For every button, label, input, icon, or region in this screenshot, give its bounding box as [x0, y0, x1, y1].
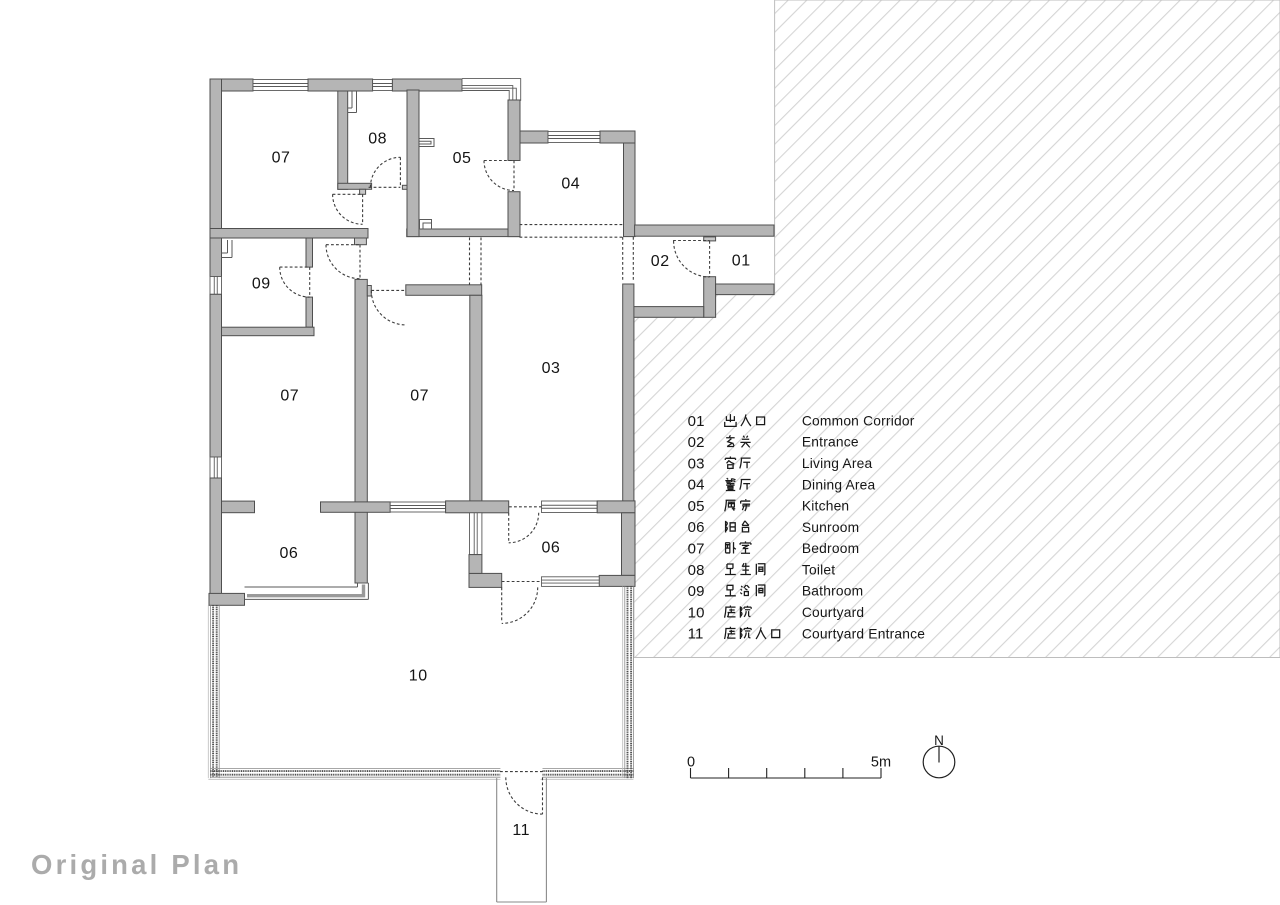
- svg-text:08: 08: [368, 130, 387, 147]
- svg-text:Common Corridor: Common Corridor: [802, 413, 915, 428]
- svg-text:Courtyard Entrance: Courtyard Entrance: [802, 626, 925, 641]
- svg-text:09: 09: [252, 275, 271, 292]
- svg-text:Toilet: Toilet: [802, 562, 835, 577]
- svg-text:Dining Area: Dining Area: [802, 477, 876, 492]
- svg-text:07: 07: [280, 387, 299, 404]
- svg-text:08: 08: [688, 562, 705, 579]
- svg-text:N: N: [934, 733, 944, 748]
- svg-text:Entrance: Entrance: [802, 435, 859, 450]
- svg-text:Courtyard: Courtyard: [802, 605, 864, 620]
- svg-text:Bathroom: Bathroom: [802, 584, 863, 599]
- svg-text:Sunroom: Sunroom: [802, 520, 859, 535]
- svg-text:09: 09: [688, 583, 705, 600]
- svg-text:07: 07: [688, 541, 705, 558]
- svg-text:04: 04: [561, 175, 580, 192]
- svg-text:0: 0: [687, 755, 695, 771]
- svg-text:05: 05: [453, 150, 472, 167]
- svg-text:05: 05: [688, 498, 705, 515]
- svg-text:02: 02: [651, 253, 670, 270]
- svg-text:11: 11: [688, 626, 704, 643]
- svg-text:Original Plan: Original Plan: [31, 849, 242, 880]
- svg-text:04: 04: [688, 477, 705, 494]
- svg-text:06: 06: [280, 545, 299, 562]
- svg-text:06: 06: [542, 539, 561, 556]
- svg-text:03: 03: [542, 360, 561, 377]
- svg-text:01: 01: [732, 253, 751, 270]
- svg-text:07: 07: [272, 150, 291, 167]
- svg-text:10: 10: [688, 604, 705, 621]
- svg-text:5m: 5m: [871, 755, 891, 771]
- svg-text:11: 11: [512, 822, 530, 839]
- svg-text:Kitchen: Kitchen: [802, 499, 849, 514]
- svg-text:10: 10: [409, 668, 428, 685]
- svg-text:06: 06: [688, 519, 705, 536]
- svg-text:02: 02: [688, 434, 705, 451]
- svg-text:03: 03: [688, 455, 705, 472]
- svg-text:Living Area: Living Area: [802, 456, 873, 471]
- svg-text:Bedroom: Bedroom: [802, 541, 859, 556]
- svg-text:07: 07: [410, 387, 429, 404]
- svg-text:01: 01: [688, 413, 705, 430]
